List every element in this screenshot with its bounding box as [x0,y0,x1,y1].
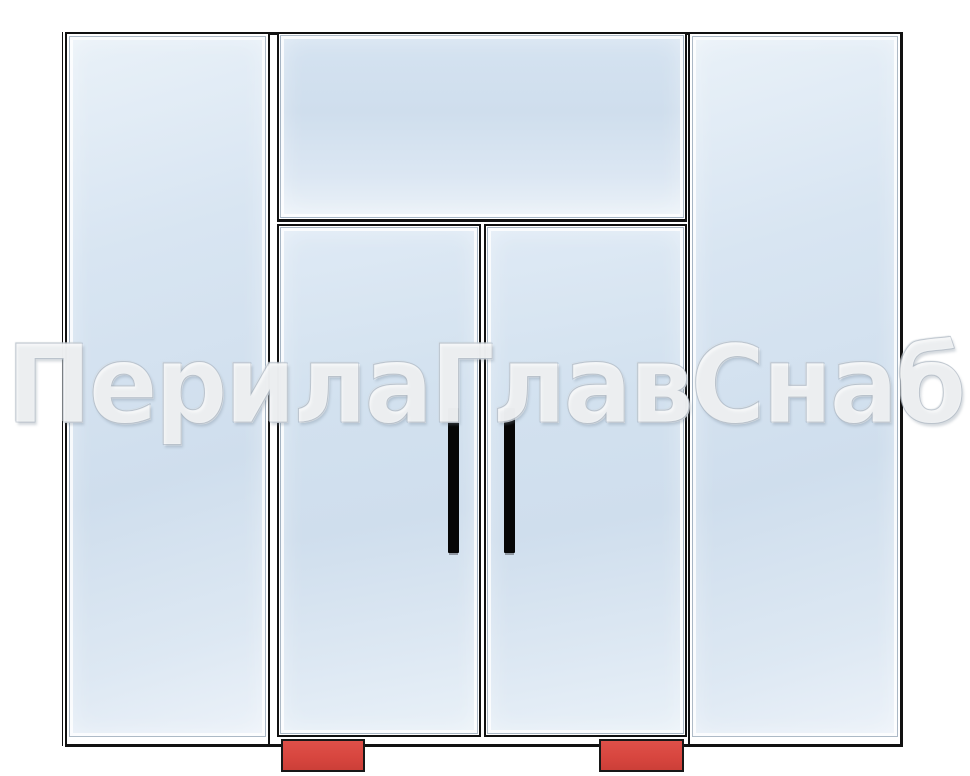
left-door-handle [448,408,459,553]
transom-panel [277,32,687,222]
right-side-panel [688,32,903,746]
left-side-panel [65,32,270,746]
right-door-handle [504,408,515,553]
right-floor-closer [599,739,684,772]
glass-entrance-elevation-drawing: ПерилаГлавСнаб [0,0,970,776]
left-floor-closer [281,739,365,772]
right-door-glass [487,227,684,734]
transom-glass [280,35,684,218]
left-side-panel-glass [69,36,266,737]
right-side-panel-glass [692,36,898,737]
